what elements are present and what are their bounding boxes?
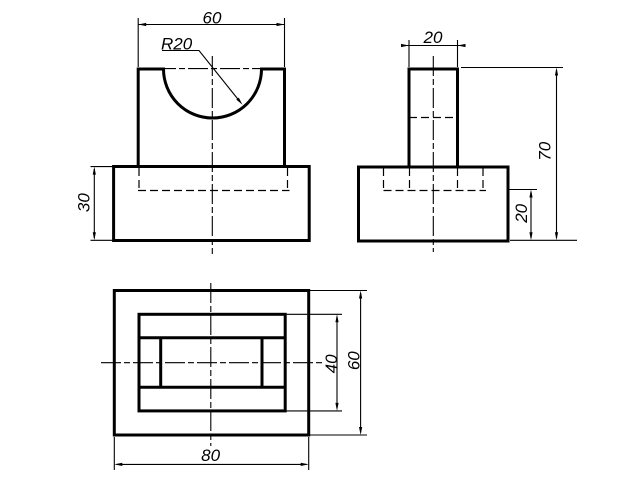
svg-text:30: 30 [75, 193, 94, 212]
svg-text:70: 70 [536, 141, 555, 160]
svg-text:80: 80 [201, 446, 220, 465]
svg-text:60: 60 [203, 9, 222, 28]
svg-text:40: 40 [322, 354, 341, 373]
svg-text:20: 20 [512, 203, 531, 223]
svg-text:R20: R20 [161, 35, 193, 54]
svg-text:20: 20 [423, 28, 443, 47]
svg-text:60: 60 [345, 351, 364, 370]
